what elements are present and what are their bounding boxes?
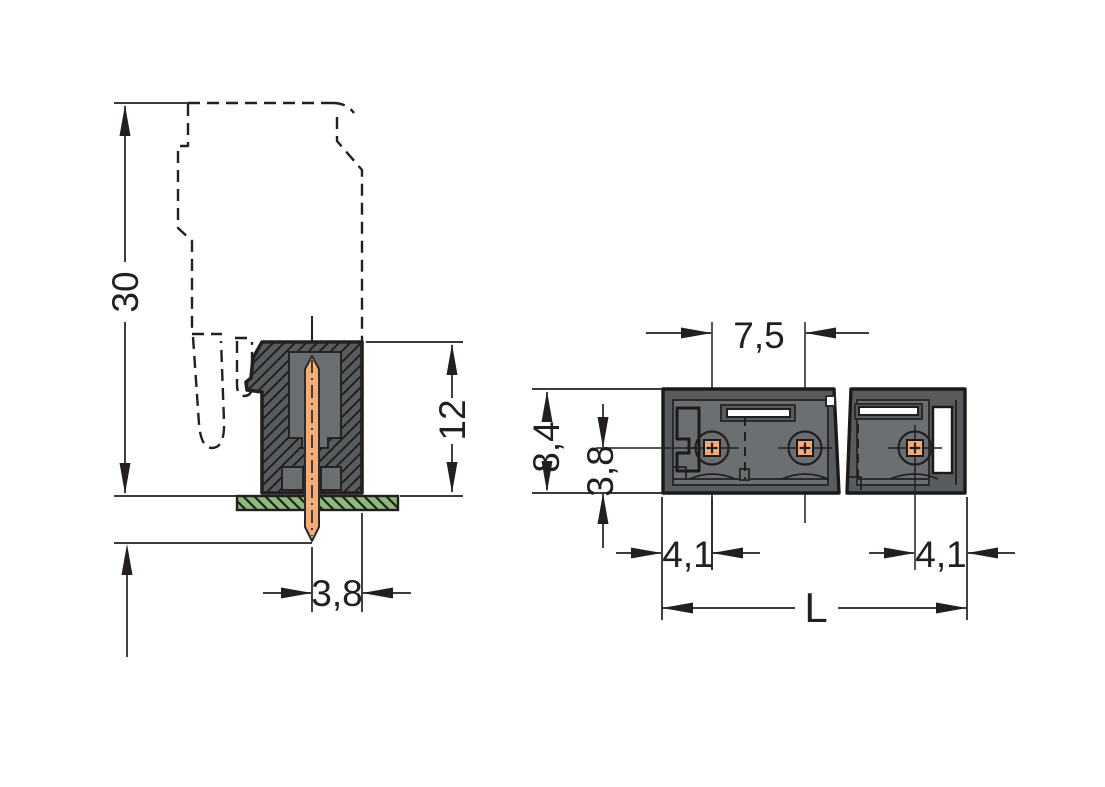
keying-profile xyxy=(677,408,699,471)
dim-height-above-pcb: 12 xyxy=(366,342,473,496)
dim-label-pin-row-to-edge: 3,8 xyxy=(580,445,621,496)
coding-slot xyxy=(727,409,790,417)
dim-label-pin-to-edge: 3,8 xyxy=(311,573,362,614)
coding-slot xyxy=(859,407,918,415)
dim-pin-row-to-edge: 3,8 xyxy=(580,404,621,548)
body-inner-step-left xyxy=(282,467,303,490)
dim-label-right-end-to-pin: 4,1 xyxy=(915,534,966,575)
arrow-left-icon xyxy=(712,548,743,559)
pin-tip-reference xyxy=(114,543,312,657)
arrow-left-icon xyxy=(967,548,998,559)
dim-overall-height: 30 xyxy=(105,103,240,496)
body-inner-step-right xyxy=(321,467,341,490)
arrow-up-icon xyxy=(542,391,553,422)
dim-label-overall-length: L xyxy=(804,584,827,631)
dim-pin-pitch: 7,5 xyxy=(646,315,869,356)
arrow-left-icon xyxy=(805,328,836,339)
arrow-down-icon xyxy=(598,417,609,448)
arrow-down-icon xyxy=(120,463,131,494)
arrow-up-icon xyxy=(120,105,131,136)
top-view: 7,5 8,4 3,8 4,1 xyxy=(526,315,1015,631)
dim-label-left-end-to-pin: 4,1 xyxy=(662,534,713,575)
end-face-slot xyxy=(933,407,952,473)
arrow-right-icon xyxy=(884,548,915,559)
dim-overall-length: L xyxy=(662,584,967,631)
arrow-left-icon xyxy=(362,588,393,599)
dim-label-height-above-pcb: 12 xyxy=(432,399,473,440)
break-notch xyxy=(826,396,835,406)
connector-dimension-drawing: 30 1 xyxy=(0,0,1105,787)
arrow-up-icon xyxy=(122,544,133,575)
dim-label-body-depth: 8,4 xyxy=(526,421,567,472)
side-view: 30 1 xyxy=(105,103,473,657)
arrow-left-icon xyxy=(662,603,693,614)
dim-label-pin-pitch: 7,5 xyxy=(733,315,784,356)
arrow-right-icon xyxy=(631,548,662,559)
technical-drawing-page: 30 1 xyxy=(0,0,1105,787)
arrow-down-icon xyxy=(447,462,458,493)
dim-pin-to-edge: 3,8 xyxy=(263,513,411,614)
arrow-up-icon xyxy=(447,344,458,375)
arrow-right-icon xyxy=(281,588,312,599)
dim-left-end-to-pin: 4,1 xyxy=(616,497,760,620)
arrow-right-icon xyxy=(681,328,712,339)
arrow-right-icon xyxy=(936,603,967,614)
dim-label-overall-height: 30 xyxy=(105,271,146,312)
dim-right-end-to-pin: 4,1 xyxy=(869,497,1015,620)
